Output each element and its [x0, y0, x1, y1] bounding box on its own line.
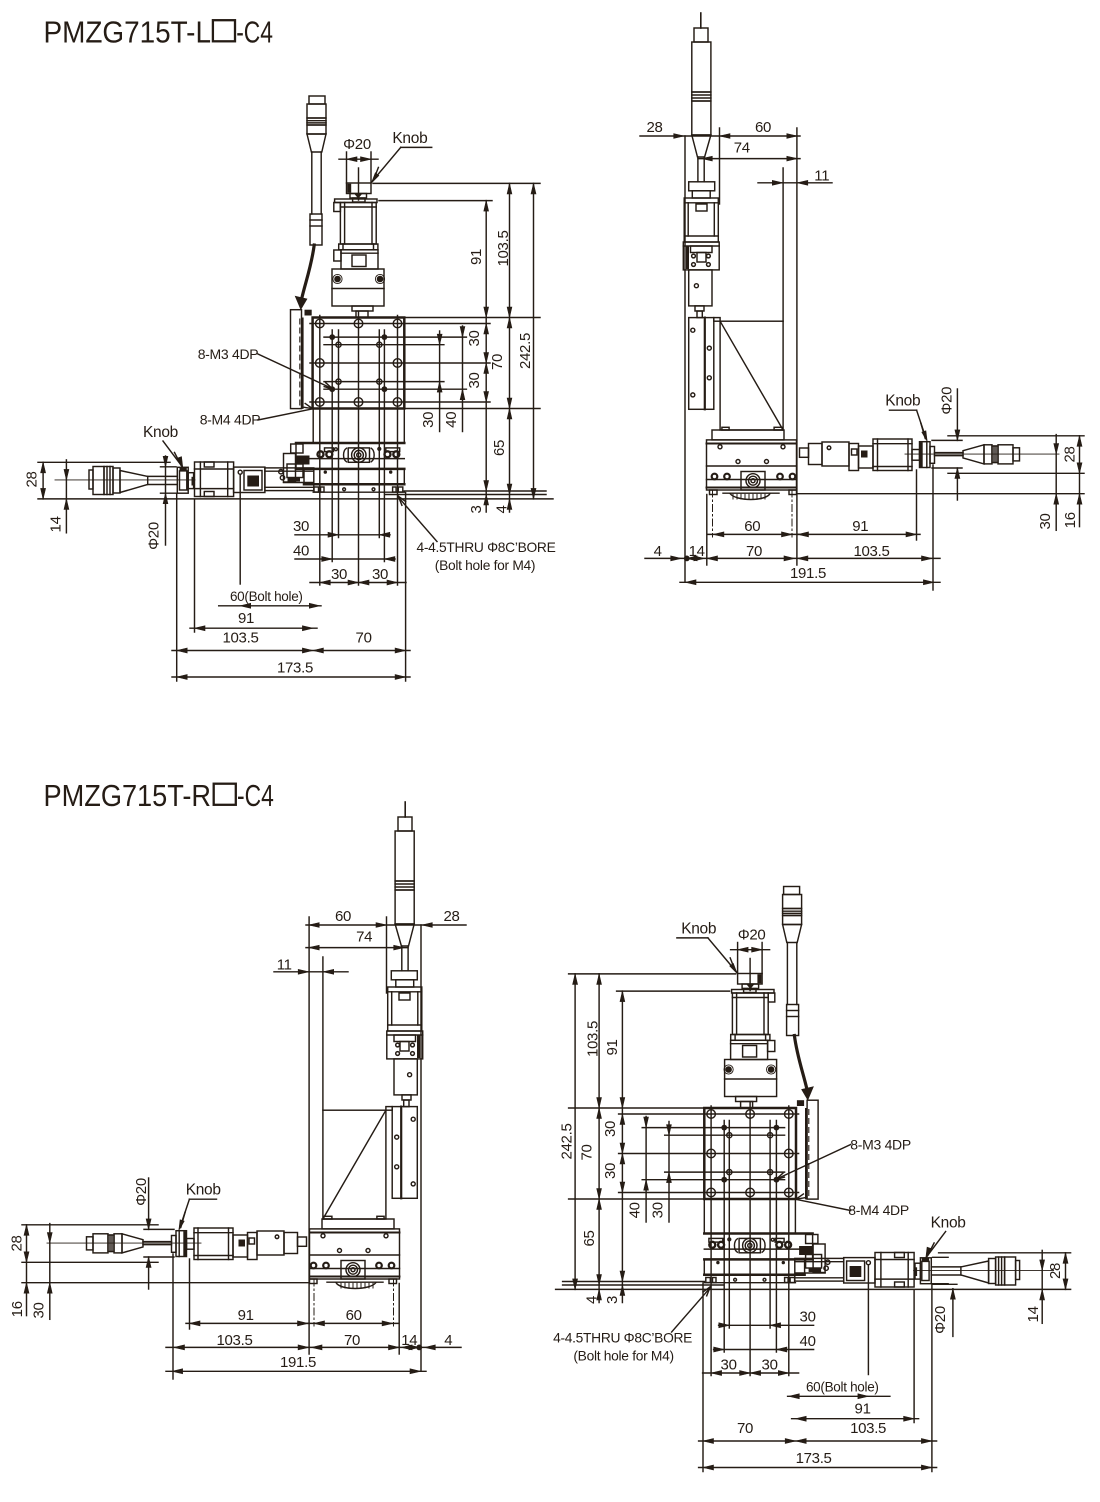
svg-text:14: 14 — [1025, 1306, 1042, 1322]
svg-text:16: 16 — [1062, 512, 1079, 528]
svg-text:91: 91 — [855, 1401, 871, 1418]
svg-text:(Bolt hole for M4): (Bolt hole for M4) — [435, 558, 535, 573]
svg-text:242.5: 242.5 — [517, 333, 534, 369]
svg-text:30: 30 — [800, 1309, 816, 1326]
svg-text:30: 30 — [721, 1357, 737, 1374]
svg-text:70: 70 — [356, 630, 372, 647]
svg-text:PMZG715T-L: PMZG715T-L — [44, 14, 212, 49]
svg-text:191.5: 191.5 — [280, 1354, 316, 1371]
svg-text:30: 30 — [602, 1163, 619, 1179]
svg-text:Knob: Knob — [186, 1182, 221, 1199]
svg-text:11: 11 — [277, 957, 292, 974]
svg-text:30: 30 — [372, 566, 388, 583]
svg-text:-C4: -C4 — [236, 14, 273, 49]
svg-text:60: 60 — [335, 908, 351, 925]
svg-text:Φ20: Φ20 — [133, 1178, 150, 1206]
svg-text:103.5: 103.5 — [495, 230, 512, 266]
svg-text:65: 65 — [581, 1230, 598, 1246]
svg-text:40: 40 — [800, 1333, 816, 1350]
svg-text:103.5: 103.5 — [585, 1021, 602, 1057]
svg-text:74: 74 — [734, 140, 750, 157]
svg-text:Φ20: Φ20 — [738, 927, 766, 944]
svg-text:30: 30 — [650, 1202, 667, 1218]
svg-text:91: 91 — [238, 610, 254, 627]
svg-text:Φ20: Φ20 — [343, 136, 371, 153]
svg-text:4: 4 — [494, 505, 511, 513]
svg-text:91: 91 — [468, 249, 485, 265]
svg-text:Knob: Knob — [143, 424, 178, 441]
svg-text:74: 74 — [356, 929, 372, 946]
svg-text:28: 28 — [443, 908, 459, 925]
svg-text:91: 91 — [852, 518, 868, 535]
svg-text:103.5: 103.5 — [222, 630, 258, 647]
svg-text:30: 30 — [420, 412, 437, 428]
svg-text:4-4.5THRU Φ8C’BORE: 4-4.5THRU Φ8C’BORE — [416, 540, 555, 555]
svg-text:65: 65 — [491, 440, 508, 456]
svg-text:103.5: 103.5 — [216, 1332, 252, 1349]
svg-text:3: 3 — [604, 1296, 621, 1304]
svg-text:8-M4 4DP: 8-M4 4DP — [848, 1202, 909, 1218]
svg-text:70: 70 — [489, 354, 506, 370]
svg-text:8-M3 4DP: 8-M3 4DP — [850, 1137, 911, 1153]
svg-text:4: 4 — [583, 1296, 600, 1304]
svg-text:91: 91 — [238, 1307, 254, 1324]
svg-text:28: 28 — [1062, 446, 1079, 462]
svg-text:3: 3 — [468, 505, 485, 513]
svg-text:-C4: -C4 — [237, 778, 274, 813]
svg-text:40: 40 — [443, 412, 460, 428]
svg-text:Knob: Knob — [681, 920, 716, 937]
svg-text:Φ20: Φ20 — [146, 522, 163, 550]
svg-text:30: 30 — [762, 1357, 778, 1374]
svg-text:30: 30 — [466, 372, 483, 388]
svg-text:11: 11 — [814, 168, 829, 185]
svg-text:40: 40 — [293, 543, 309, 560]
svg-text:30: 30 — [331, 566, 347, 583]
svg-text:173.5: 173.5 — [796, 1450, 832, 1467]
svg-text:28: 28 — [24, 471, 41, 487]
svg-text:14: 14 — [689, 543, 705, 560]
svg-text:70: 70 — [578, 1144, 595, 1160]
svg-text:103.5: 103.5 — [850, 1420, 886, 1437]
svg-text:4-4.5THRU Φ8C’BORE: 4-4.5THRU Φ8C’BORE — [553, 1331, 692, 1346]
svg-text:70: 70 — [737, 1420, 753, 1437]
svg-text:(Bolt hole for M4): (Bolt hole for M4) — [573, 1349, 673, 1364]
svg-text:30: 30 — [602, 1121, 619, 1137]
svg-text:60: 60 — [346, 1307, 362, 1324]
svg-text:60(Bolt hole): 60(Bolt hole) — [230, 589, 303, 604]
svg-text:70: 70 — [746, 543, 762, 560]
svg-text:173.5: 173.5 — [277, 660, 313, 677]
svg-text:30: 30 — [31, 1302, 48, 1318]
svg-text:30: 30 — [466, 330, 483, 346]
svg-text:28: 28 — [9, 1235, 26, 1251]
svg-text:Knob: Knob — [392, 130, 427, 147]
svg-text:4: 4 — [444, 1332, 452, 1349]
svg-text:14: 14 — [401, 1332, 417, 1349]
svg-text:14: 14 — [48, 516, 65, 532]
svg-text:PMZG715T-R: PMZG715T-R — [44, 778, 212, 813]
svg-text:60: 60 — [744, 518, 760, 535]
svg-text:30: 30 — [293, 518, 309, 535]
svg-text:60(Bolt hole): 60(Bolt hole) — [806, 1380, 879, 1395]
svg-text:40: 40 — [627, 1202, 644, 1218]
svg-text:91: 91 — [604, 1039, 621, 1055]
svg-text:8-M4 4DP: 8-M4 4DP — [200, 412, 261, 428]
svg-text:242.5: 242.5 — [559, 1123, 576, 1159]
svg-text:70: 70 — [344, 1332, 360, 1349]
svg-text:8-M3 4DP: 8-M3 4DP — [198, 346, 259, 362]
svg-text:Φ20: Φ20 — [938, 387, 955, 415]
svg-text:30: 30 — [1037, 513, 1054, 529]
svg-text:16: 16 — [9, 1301, 26, 1317]
svg-text:103.5: 103.5 — [853, 543, 889, 560]
svg-text:60: 60 — [755, 119, 771, 136]
svg-text:Knob: Knob — [931, 1215, 966, 1232]
svg-text:28: 28 — [646, 119, 662, 136]
svg-text:Φ20: Φ20 — [932, 1306, 949, 1334]
svg-text:Knob: Knob — [885, 393, 920, 410]
svg-text:28: 28 — [1047, 1263, 1064, 1279]
svg-text:4: 4 — [654, 543, 662, 560]
svg-text:191.5: 191.5 — [790, 565, 826, 582]
